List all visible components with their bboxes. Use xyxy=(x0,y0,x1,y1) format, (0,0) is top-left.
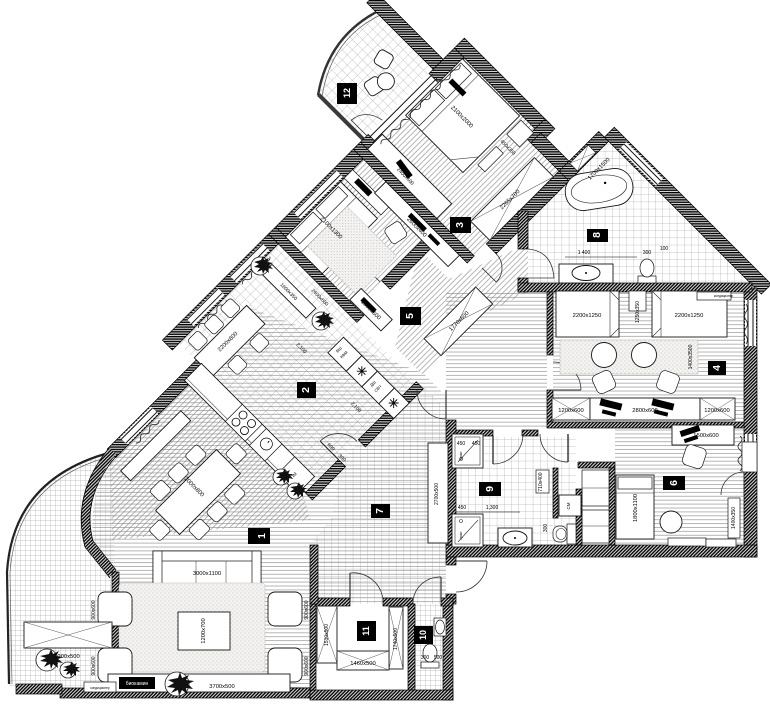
svg-text:1510х500: 1510х500 xyxy=(324,624,330,646)
svg-text:1,300: 1,300 xyxy=(486,505,499,511)
svg-text:1400х3500: 1400х3500 xyxy=(688,344,694,369)
svg-text:1800х1100: 1800х1100 xyxy=(633,494,639,522)
svg-text:трап: трап xyxy=(458,452,463,460)
svg-text:кондиционер: кондиционер xyxy=(714,294,734,298)
svg-text:1250х350: 1250х350 xyxy=(635,301,641,323)
svg-text:1460х500: 1460х500 xyxy=(350,661,375,667)
svg-text:СМ: СМ xyxy=(566,502,571,509)
svg-text:2: 2 xyxy=(300,387,312,393)
svg-text:кондиционер: кондиционер xyxy=(90,686,110,690)
svg-text:1400х350: 1400х350 xyxy=(731,507,737,529)
svg-text:710х400: 710х400 xyxy=(538,472,544,491)
svg-text:2700х500: 2700х500 xyxy=(434,483,440,505)
svg-text:1740х500: 1740х500 xyxy=(393,628,399,650)
svg-text:300: 300 xyxy=(643,250,652,256)
svg-text:900х600: 900х600 xyxy=(304,600,310,619)
svg-text:1200х600: 1200х600 xyxy=(704,408,729,414)
svg-text:10: 10 xyxy=(418,630,428,640)
svg-text:12: 12 xyxy=(342,88,352,98)
svg-text:300: 300 xyxy=(543,524,549,533)
svg-text:900х600: 900х600 xyxy=(304,656,310,675)
svg-text:300: 300 xyxy=(421,655,430,661)
svg-text:3000х1100: 3000х1100 xyxy=(193,571,221,577)
svg-text:8: 8 xyxy=(591,232,603,238)
svg-text:1 400: 1 400 xyxy=(578,250,591,256)
svg-text:6: 6 xyxy=(668,480,680,486)
svg-text:11: 11 xyxy=(361,626,371,636)
svg-text:1: 1 xyxy=(256,533,268,539)
svg-text:2200х1250: 2200х1250 xyxy=(675,313,704,319)
svg-text:2800х600: 2800х600 xyxy=(632,408,657,414)
svg-text:450: 450 xyxy=(472,441,481,447)
svg-text:9: 9 xyxy=(484,486,496,492)
svg-text:7: 7 xyxy=(374,508,386,514)
svg-text:2200х1250: 2200х1250 xyxy=(573,313,602,319)
svg-text:трап: трап xyxy=(458,532,463,540)
svg-text:3: 3 xyxy=(454,222,466,228)
svg-text:1200х500: 1200х500 xyxy=(54,654,79,660)
svg-text:биокамин: биокамин xyxy=(126,681,149,687)
svg-text:1200х600: 1200х600 xyxy=(558,408,583,414)
svg-text:900х600: 900х600 xyxy=(91,656,97,675)
svg-text:450: 450 xyxy=(457,441,466,447)
svg-text:1200х700: 1200х700 xyxy=(201,618,207,643)
svg-text:900х600: 900х600 xyxy=(91,600,97,619)
svg-text:500: 500 xyxy=(434,655,443,661)
svg-text:450: 450 xyxy=(458,505,467,511)
svg-text:100: 100 xyxy=(660,246,669,252)
svg-text:5: 5 xyxy=(404,313,416,319)
svg-text:4: 4 xyxy=(711,365,723,371)
svg-text:3700х500: 3700х500 xyxy=(209,684,234,690)
svg-text:1500х600: 1500х600 xyxy=(693,433,718,439)
